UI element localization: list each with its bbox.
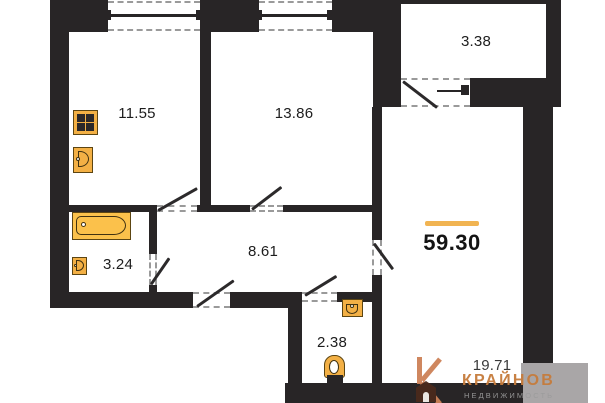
bathtub-drain: [81, 222, 86, 227]
sink-faucet: [350, 304, 354, 308]
kitchen-area-label: 11.55: [105, 105, 169, 122]
wall-living-left-upper: [372, 107, 382, 240]
wall-corridor-top-kitchen: [69, 205, 157, 212]
stove-burner: [77, 114, 85, 122]
bedroom-window-cap-right: [327, 10, 335, 20]
stove-burner: [86, 114, 94, 122]
sink-faucet: [74, 264, 77, 267]
wall-corridor-top-mid: [197, 205, 250, 212]
brand-name: КРАЙНОВ: [462, 372, 555, 390]
wall-top-kitchen: [50, 0, 108, 32]
bedroom-area-label: 13.86: [262, 105, 326, 122]
wall-bathroom-right-lower: [149, 285, 157, 292]
total-area-block: 59.30: [410, 221, 494, 256]
sink-bowl: [76, 260, 84, 271]
total-area-value: 59.30: [410, 230, 494, 256]
bathroom-area-label: 3.24: [86, 256, 150, 273]
wall-bottom-left-a: [50, 292, 193, 308]
bedroom-window-cap-left: [254, 10, 262, 20]
wall-corridor-top-right: [283, 205, 372, 212]
brand-logo-house-k-icon: [416, 356, 452, 402]
wall-bathroom-right-upper: [149, 212, 157, 254]
wall-top-right-chunk: [332, 0, 401, 32]
hallway-area-label: 8.61: [231, 243, 295, 260]
wall-kitchen-bedroom-divider: [200, 32, 211, 205]
wc-area-label: 2.38: [300, 334, 364, 351]
wall-balcony-bottom-chunk: [470, 78, 561, 107]
wall-left-outer: [50, 0, 69, 308]
wc-sink-icon: [342, 299, 363, 317]
toilet-cistern: [327, 375, 343, 383]
toilet-bowl: [329, 360, 339, 374]
floor-plan: 11.55 13.86 3.38 8.61 3.24 2.38 19.71 59…: [0, 0, 605, 403]
stove-burner: [86, 123, 94, 131]
balcony-area-label: 3.38: [444, 33, 508, 50]
bathtub-icon: [72, 212, 131, 240]
kitchen-sink-icon: [73, 147, 93, 173]
logo-k-arm-upper: [420, 357, 442, 382]
wall-bedroom-balcony-slab: [373, 32, 401, 107]
wall-living-right: [523, 107, 553, 363]
wall-living-left-lower: [372, 275, 382, 383]
kitchen-window-cap-left: [103, 10, 111, 20]
sink-faucet: [76, 157, 80, 161]
balcony-door-cap: [461, 85, 469, 95]
kitchen-window-frame: [108, 14, 200, 17]
bedroom-window-frame: [259, 14, 332, 17]
wall-top-between-windows: [200, 0, 259, 32]
kitchen-window-cap-right: [196, 10, 204, 20]
total-area-accent-line: [425, 221, 479, 226]
brand-tagline: НЕДВИЖИМОСТЬ: [464, 391, 554, 400]
balcony-door-opening: [401, 78, 470, 107]
wall-balcony-right: [546, 0, 561, 78]
brand-logo: КРАЙНОВ НЕДВИЖИМОСТЬ: [416, 356, 586, 402]
bathroom-sink-icon: [72, 257, 87, 275]
logo-house-door: [423, 392, 429, 402]
wall-balcony-top: [388, 0, 548, 4]
stove-icon: [73, 110, 98, 135]
stove-burner: [77, 123, 85, 131]
